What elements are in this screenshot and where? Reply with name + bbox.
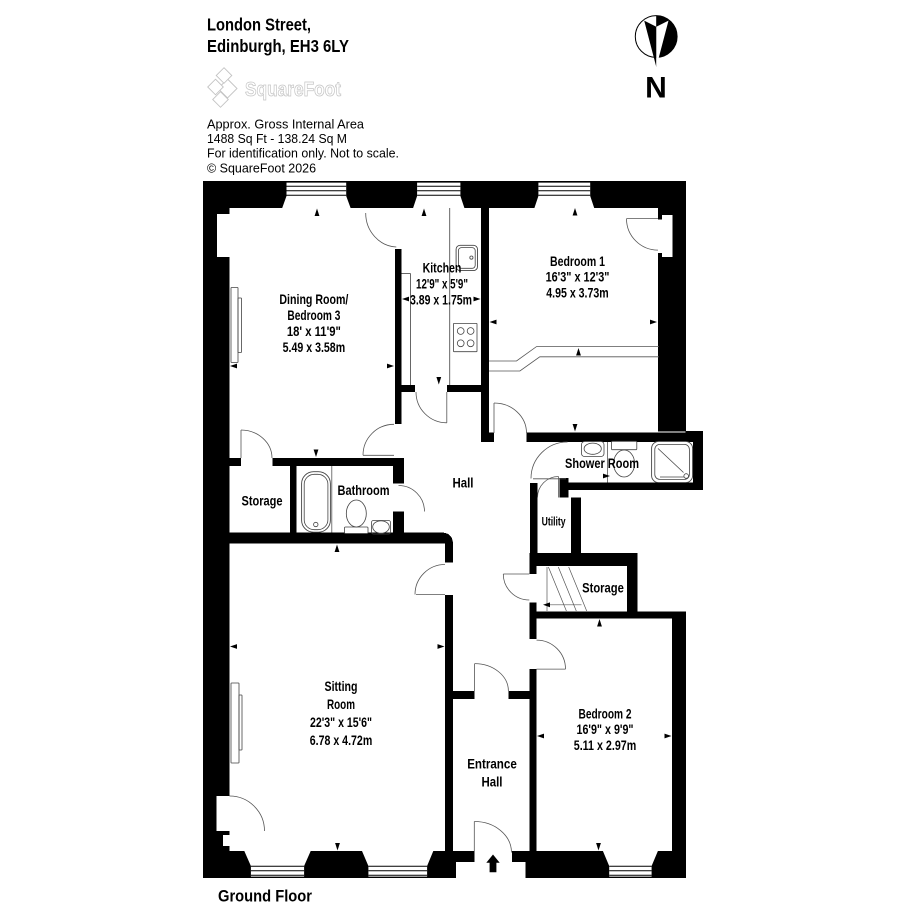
svg-text:Bedroom 2: Bedroom 2	[579, 706, 632, 722]
svg-text:Storage: Storage	[582, 580, 624, 596]
svg-text:N: N	[645, 72, 667, 105]
svg-text:London Street,: London Street,	[207, 15, 311, 35]
svg-text:Room: Room	[327, 696, 355, 712]
svg-text:12'9" x 5'9": 12'9" x 5'9"	[416, 276, 468, 292]
svg-text:For identification only. Not t: For identification only. Not to scale.	[207, 145, 399, 160]
svg-text:22'3" x 15'6": 22'3" x 15'6"	[310, 714, 372, 730]
svg-text:Kitchen: Kitchen	[423, 260, 462, 276]
svg-text:Bathroom: Bathroom	[338, 482, 390, 498]
svg-text:SquareFoot: SquareFoot	[245, 78, 341, 101]
svg-text:6.78 x 4.72m: 6.78 x 4.72m	[310, 732, 373, 748]
svg-text:Utility: Utility	[542, 517, 566, 529]
svg-text:4.95 x 3.73m: 4.95 x 3.73m	[546, 284, 608, 300]
svg-text:16'3" x 12'3": 16'3" x 12'3"	[546, 269, 610, 285]
svg-text:Ground Floor: Ground Floor	[218, 888, 313, 906]
svg-text:Bedroom 3: Bedroom 3	[287, 307, 340, 323]
svg-text:Entrance: Entrance	[467, 756, 517, 772]
svg-text:Hall: Hall	[482, 774, 503, 790]
svg-text:Bedroom 1: Bedroom 1	[550, 253, 605, 269]
svg-text:Edinburgh, EH3 6LY: Edinburgh, EH3 6LY	[207, 36, 349, 56]
svg-text:Shower Room: Shower Room	[565, 455, 639, 471]
svg-text:16'9" x 9'9": 16'9" x 9'9"	[577, 721, 634, 737]
svg-text:Storage: Storage	[242, 493, 283, 509]
svg-text:© SquareFoot 2026: © SquareFoot 2026	[207, 160, 316, 175]
svg-text:1488 Sq Ft - 138.24 Sq M: 1488 Sq Ft - 138.24 Sq M	[207, 131, 347, 146]
svg-text:3.89 x 1.75m: 3.89 x 1.75m	[410, 292, 472, 308]
svg-text:18' x 11'9": 18' x 11'9"	[287, 323, 341, 339]
svg-text:5.11 x 2.97m: 5.11 x 2.97m	[574, 737, 637, 753]
svg-text:5.49 x 3.58m: 5.49 x 3.58m	[283, 339, 346, 355]
svg-text:Approx. Gross Internal Area: Approx. Gross Internal Area	[207, 116, 365, 131]
svg-text:Hall: Hall	[453, 475, 474, 491]
svg-text:Sitting: Sitting	[325, 678, 358, 694]
svg-text:Dining Room/: Dining Room/	[279, 291, 348, 307]
